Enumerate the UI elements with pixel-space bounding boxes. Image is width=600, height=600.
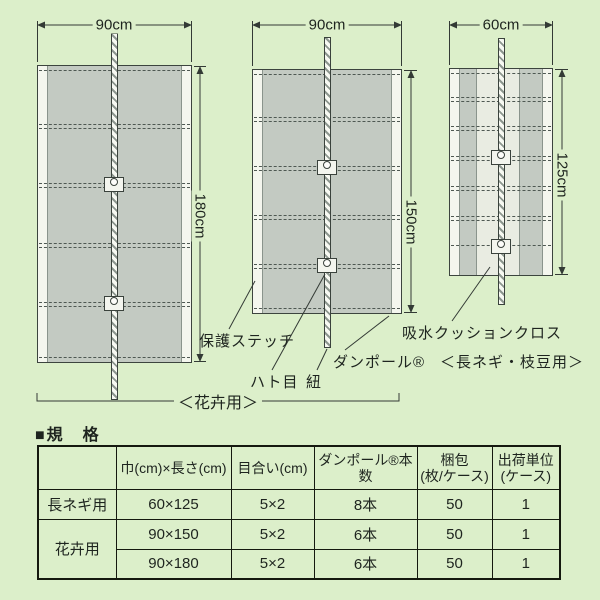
unit-cell: 1 (492, 489, 560, 519)
height-dimension-label: 180cm (192, 190, 209, 241)
center-cord (498, 38, 505, 305)
catalog-page: 90cm 90cm 60cm 180cm 150cm 125cm 保護ステッチ … (0, 0, 600, 600)
danpole-label: ダンポール® (333, 351, 425, 372)
use-cell: 長ネギ用 (38, 489, 116, 519)
mesh-cell: 5×2 (231, 549, 314, 579)
width-dimension-label: 60cm (480, 17, 523, 34)
cord-label: 紐 (306, 371, 322, 392)
pack-cell: 50 (417, 549, 492, 579)
unit-cell: 1 (492, 519, 560, 549)
negi-use-label: ＜長ネギ・枝豆用＞ (440, 351, 584, 372)
size-cell: 90×180 (116, 549, 231, 579)
flower-use-label: ＜花卉用＞ (174, 389, 262, 413)
eyelet (317, 258, 337, 273)
spec-header-poles: ダンポール®本数 (314, 446, 417, 489)
poles-cell: 8本 (314, 489, 417, 519)
spec-header-row: 巾(cm)×長さ(cm) 目合い(cm) ダンポール®本数 梱包 (枚/ケース)… (38, 446, 560, 489)
protective-stitch-border (391, 70, 401, 313)
spec-row-kaki-2: 90×180 5×2 6本 50 1 (38, 549, 560, 579)
size-cell: 90×150 (116, 519, 231, 549)
spec-header-pack: 梱包 (枚/ケース) (417, 446, 492, 489)
protective-stitch-label: 保護ステッチ (199, 330, 295, 351)
spec-header-blank (38, 446, 116, 489)
width-dimension-label: 90cm (306, 17, 349, 34)
eyelet (491, 150, 511, 165)
spec-header-mesh: 目合い(cm) (231, 446, 314, 489)
eyelet (317, 160, 337, 175)
pack-cell: 50 (417, 489, 492, 519)
unit-cell: 1 (492, 549, 560, 579)
center-cord (111, 33, 118, 400)
eyelet (104, 177, 124, 192)
spec-table: 巾(cm)×長さ(cm) 目合い(cm) ダンポール®本数 梱包 (枚/ケース)… (37, 445, 561, 580)
spec-table-title: ■規 格 (35, 421, 101, 445)
poles-cell: 6本 (314, 549, 417, 579)
spec-row-kaki-1: 花卉用 90×150 5×2 6本 50 1 (38, 519, 560, 549)
eyelet (491, 239, 511, 254)
protective-stitch-border (253, 70, 263, 313)
protective-stitch-border (181, 66, 191, 362)
pack-cell: 50 (417, 519, 492, 549)
mesh-cell: 5×2 (231, 519, 314, 549)
protective-stitch-border (38, 66, 48, 362)
center-cord (324, 37, 331, 348)
height-dimension-label: 125cm (554, 149, 571, 200)
use-cell: 花卉用 (38, 519, 116, 579)
mesh-cell: 5×2 (231, 489, 314, 519)
width-dimension-label: 90cm (93, 17, 136, 34)
height-dimension-label: 150cm (403, 196, 420, 247)
spec-header-size: 巾(cm)×長さ(cm) (116, 446, 231, 489)
eyelet (104, 296, 124, 311)
cushion-cloth-label: 吸水クッションクロス (402, 322, 562, 343)
spec-row-naganegi: 長ネギ用 60×125 5×2 8本 50 1 (38, 489, 560, 519)
size-cell: 60×125 (116, 489, 231, 519)
poles-cell: 6本 (314, 519, 417, 549)
spec-header-unit: 出荷単位 (ケース) (492, 446, 560, 489)
